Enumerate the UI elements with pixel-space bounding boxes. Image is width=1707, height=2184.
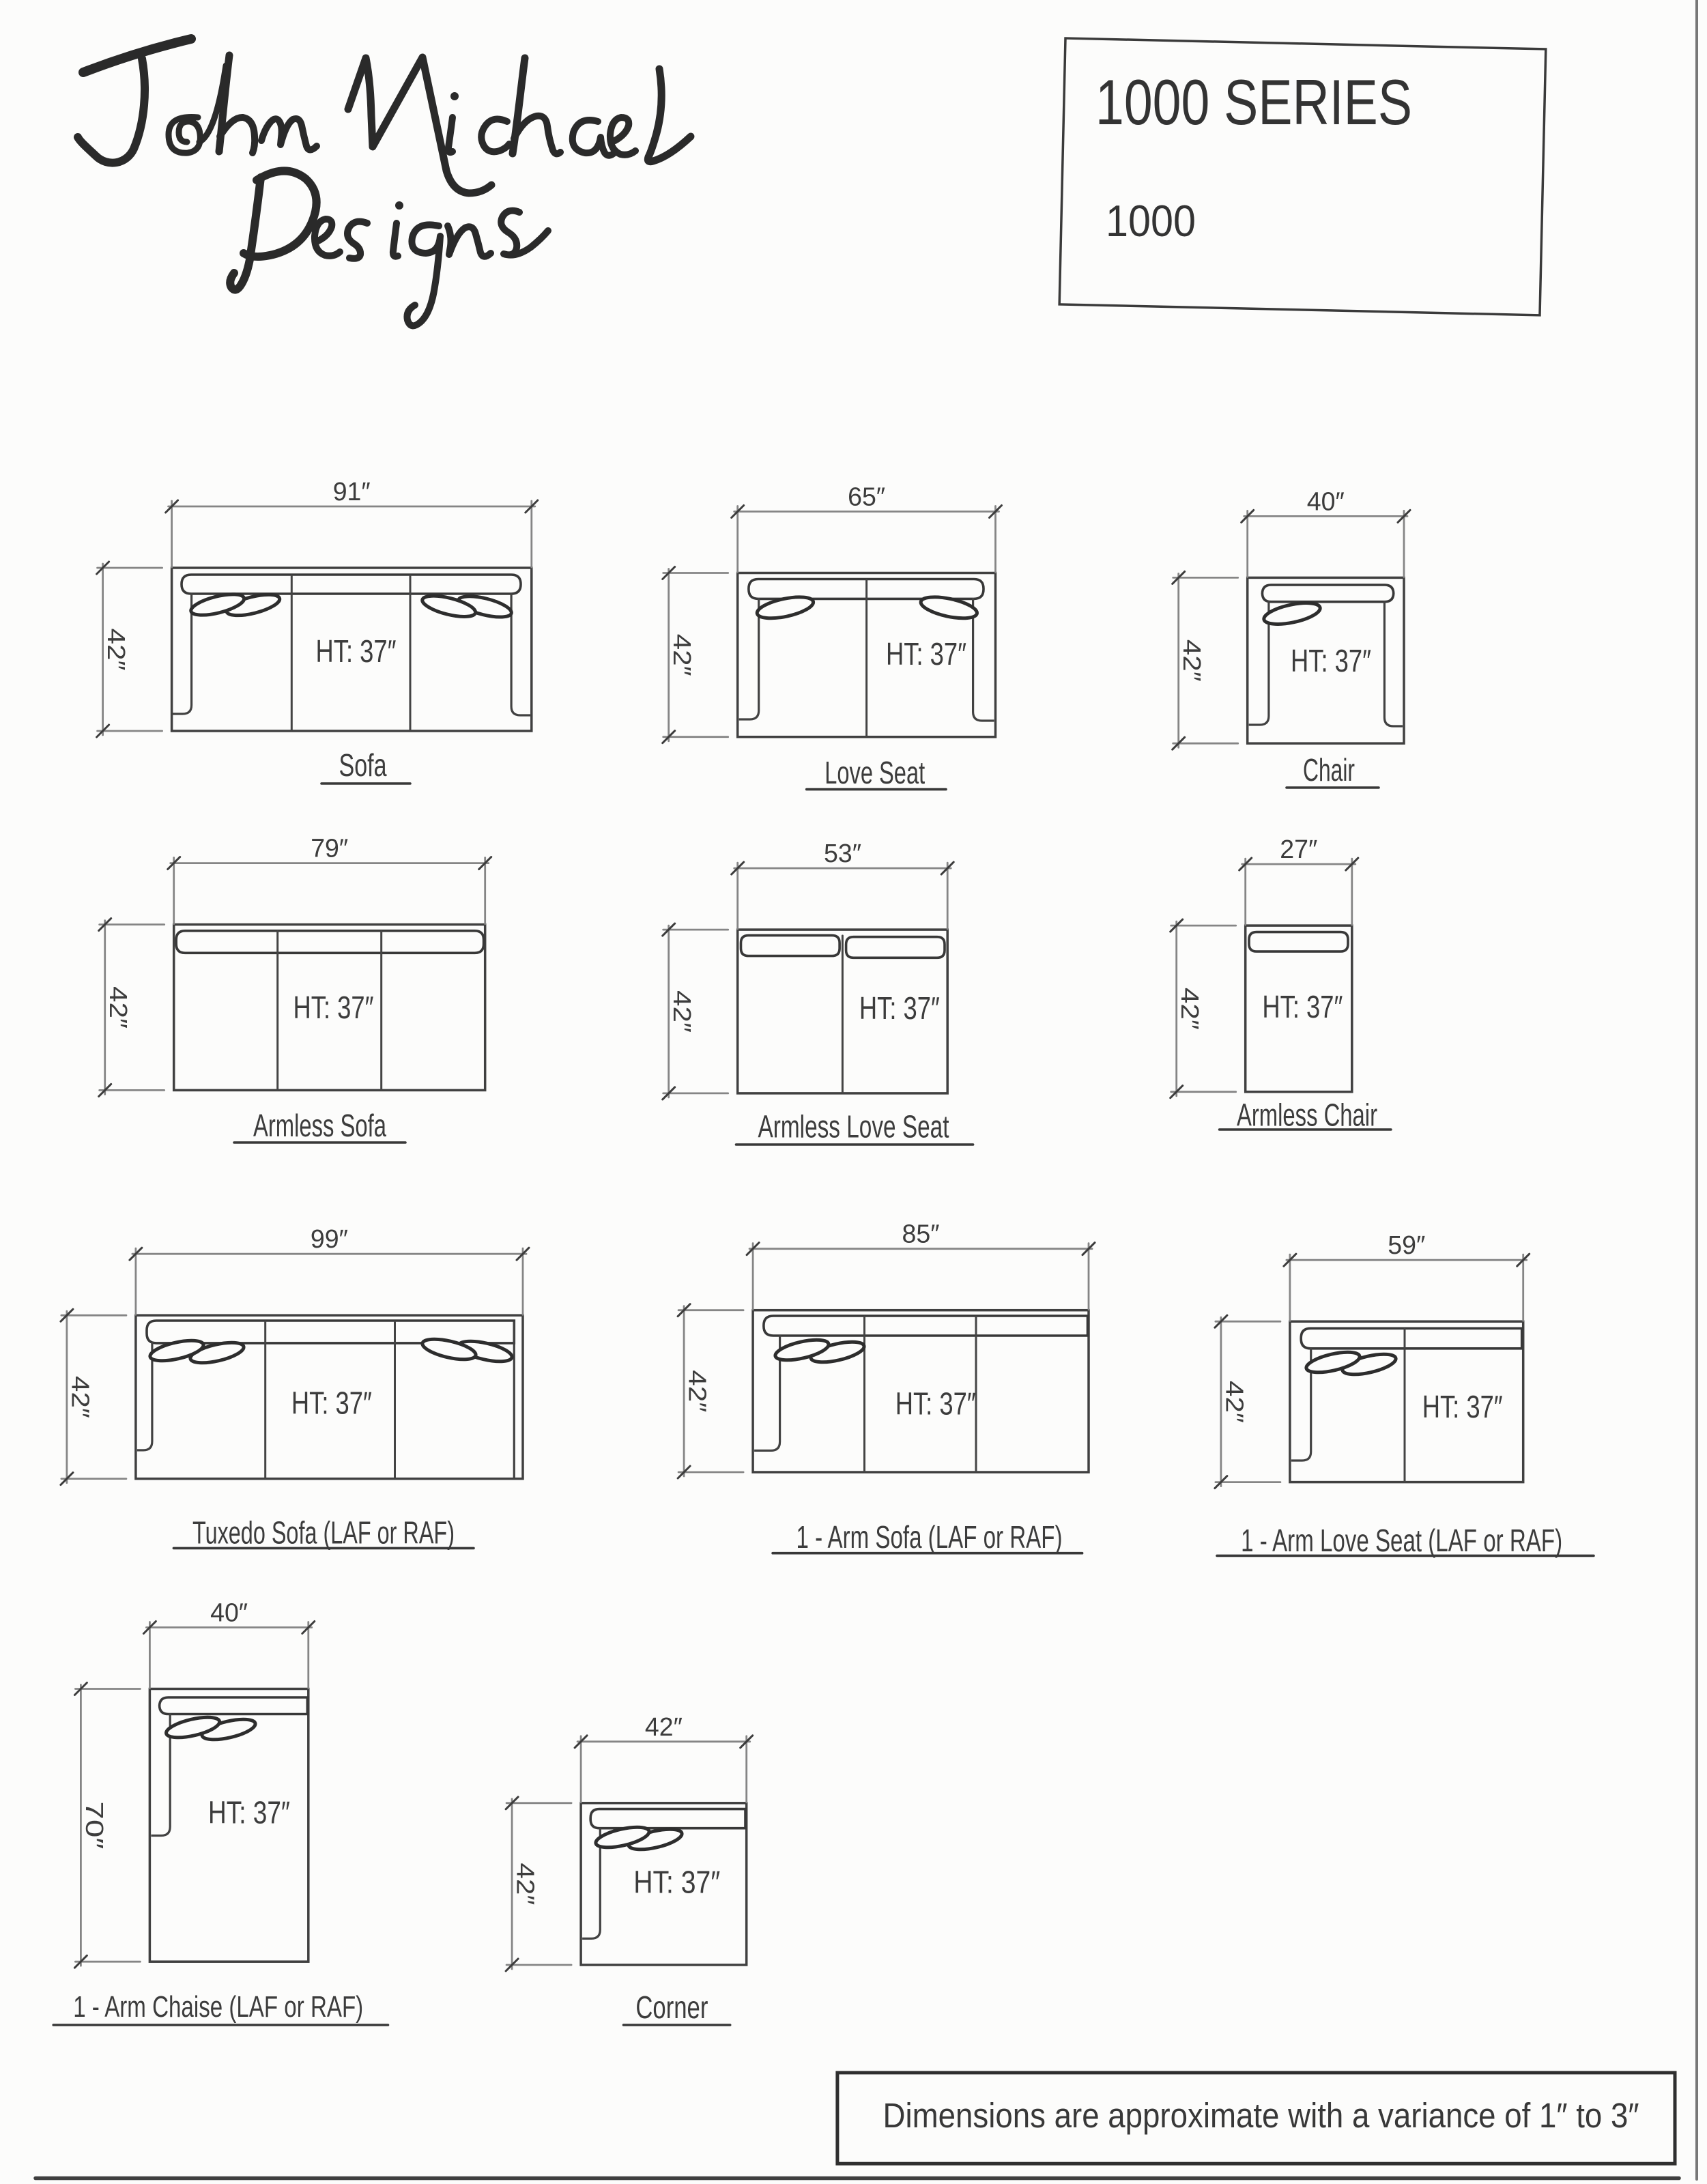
svg-text:53″: 53″ bbox=[824, 839, 861, 868]
svg-text:HT: 37″: HT: 37″ bbox=[895, 1386, 976, 1422]
svg-text:Tuxedo Sofa (LAF or RAF): Tuxedo Sofa (LAF or RAF) bbox=[192, 1514, 455, 1550]
svg-text:HT: 37″: HT: 37″ bbox=[1262, 989, 1343, 1024]
svg-text:42″: 42″ bbox=[1176, 988, 1204, 1030]
svg-text:Corner: Corner bbox=[635, 1989, 708, 2025]
svg-text:HT: 37″: HT: 37″ bbox=[633, 1865, 720, 1900]
svg-text:Chair: Chair bbox=[1303, 752, 1355, 788]
svg-text:HT: 37″: HT: 37″ bbox=[291, 1385, 372, 1421]
svg-text:42″: 42″ bbox=[645, 1713, 683, 1742]
svg-text:59″: 59″ bbox=[1388, 1231, 1425, 1260]
svg-text:1 - Arm Chaise (LAF or RAF): 1 - Arm Chaise (LAF or RAF) bbox=[73, 1990, 363, 2024]
svg-text:42″: 42″ bbox=[668, 634, 696, 676]
svg-text:65″: 65″ bbox=[848, 483, 885, 512]
svg-text:99″: 99″ bbox=[311, 1225, 348, 1254]
svg-text:HT: 37″: HT: 37″ bbox=[1291, 643, 1371, 678]
svg-text:42″: 42″ bbox=[104, 986, 132, 1029]
svg-text:42″: 42″ bbox=[1220, 1381, 1248, 1423]
svg-text:79″: 79″ bbox=[311, 835, 348, 863]
svg-text:1000 SERIES: 1000 SERIES bbox=[1095, 66, 1412, 138]
svg-text:40″: 40″ bbox=[210, 1599, 248, 1628]
svg-text:Love Seat: Love Seat bbox=[824, 755, 925, 790]
svg-text:70″: 70″ bbox=[81, 1801, 109, 1849]
svg-text:HT: 37″: HT: 37″ bbox=[208, 1795, 290, 1830]
svg-text:Sofa: Sofa bbox=[339, 747, 387, 783]
svg-text:HT: 37″: HT: 37″ bbox=[859, 990, 940, 1026]
svg-text:1 - Arm Love Seat (LAF or RAF): 1 - Arm Love Seat (LAF or RAF) bbox=[1241, 1523, 1562, 1558]
svg-text:HT: 37″: HT: 37″ bbox=[316, 633, 397, 669]
svg-text:40″: 40″ bbox=[1307, 487, 1345, 516]
svg-text:HT: 37″: HT: 37″ bbox=[293, 990, 374, 1025]
svg-text:42″: 42″ bbox=[512, 1863, 540, 1905]
svg-text:42″: 42″ bbox=[1178, 640, 1206, 682]
svg-text:42″: 42″ bbox=[684, 1370, 712, 1412]
svg-text:42″: 42″ bbox=[668, 990, 696, 1033]
svg-text:HT: 37″: HT: 37″ bbox=[1422, 1389, 1503, 1424]
svg-text:91″: 91″ bbox=[333, 478, 371, 506]
svg-text:1 - Arm Sofa (LAF or RAF): 1 - Arm Sofa (LAF or RAF) bbox=[797, 1519, 1063, 1555]
svg-text:85″: 85″ bbox=[902, 1220, 940, 1249]
svg-text:27″: 27″ bbox=[1280, 835, 1317, 864]
svg-text:Dimensions are approximate wit: Dimensions are approximate with a varian… bbox=[883, 2096, 1639, 2135]
svg-text:Armless Sofa: Armless Sofa bbox=[253, 1108, 386, 1143]
svg-text:Armless Love Seat: Armless Love Seat bbox=[758, 1108, 949, 1144]
svg-text:42″: 42″ bbox=[66, 1376, 94, 1418]
svg-text:42″: 42″ bbox=[102, 629, 130, 671]
svg-text:1000: 1000 bbox=[1106, 196, 1196, 246]
svg-text:HT: 37″: HT: 37″ bbox=[886, 636, 966, 672]
svg-text:Armless Chair: Armless Chair bbox=[1237, 1097, 1377, 1132]
